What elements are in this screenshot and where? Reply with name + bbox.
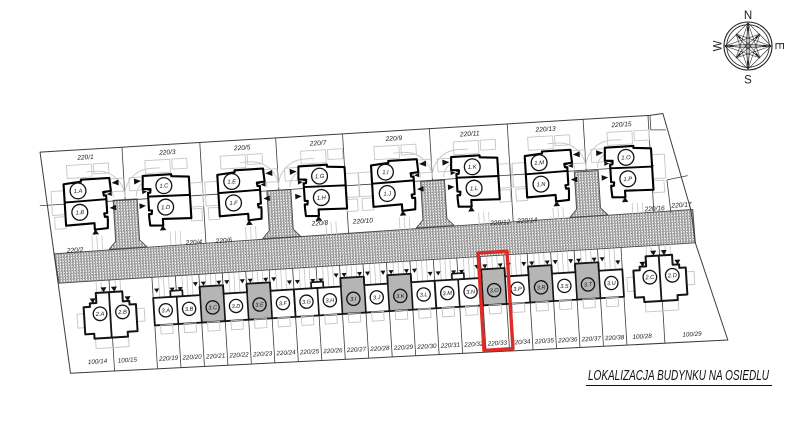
svg-text:220/14: 220/14: [516, 217, 538, 225]
svg-text:1.L: 1.L: [470, 186, 478, 192]
svg-text:220/10: 220/10: [352, 217, 374, 225]
svg-text:1.N: 1.N: [536, 182, 546, 189]
svg-text:1.F: 1.F: [229, 201, 238, 208]
svg-text:3.T: 3.T: [584, 282, 593, 289]
svg-text:220/2: 220/2: [66, 247, 84, 255]
svg-text:220/25: 220/25: [299, 348, 320, 356]
svg-text:2.C: 2.C: [644, 275, 655, 282]
svg-text:2.A: 2.A: [95, 312, 105, 319]
svg-text:1.E: 1.E: [227, 179, 236, 186]
svg-text:220/32: 220/32: [463, 341, 484, 349]
svg-text:220/24: 220/24: [275, 349, 296, 357]
svg-text:E: E: [773, 42, 785, 50]
svg-text:1.K: 1.K: [468, 164, 478, 171]
svg-text:220/36: 220/36: [557, 336, 578, 344]
svg-text:3.E: 3.E: [255, 302, 264, 309]
svg-text:1.J: 1.J: [383, 191, 391, 197]
svg-text:220/17: 220/17: [670, 201, 692, 209]
svg-text:220/5: 220/5: [233, 144, 251, 152]
svg-text:3.M: 3.M: [442, 291, 452, 298]
svg-text:3.L: 3.L: [420, 292, 428, 298]
svg-text:3.U: 3.U: [607, 281, 617, 288]
svg-text:1.M: 1.M: [534, 160, 544, 167]
svg-text:1.A: 1.A: [74, 189, 83, 196]
svg-text:1.C: 1.C: [159, 183, 169, 190]
svg-text:220/12: 220/12: [489, 219, 511, 227]
svg-text:3.I: 3.I: [350, 297, 357, 303]
svg-text:1.H: 1.H: [317, 195, 327, 202]
svg-text:1.G: 1.G: [315, 174, 325, 181]
svg-text:220/11: 220/11: [459, 130, 480, 138]
svg-text:3.A: 3.A: [161, 308, 170, 315]
svg-text:100/15: 100/15: [118, 356, 138, 364]
svg-text:3.S: 3.S: [560, 284, 569, 291]
svg-text:220/6: 220/6: [214, 237, 232, 245]
svg-text:S: S: [744, 75, 752, 87]
svg-text:3.C: 3.C: [208, 305, 218, 312]
svg-text:3.R: 3.R: [537, 285, 546, 292]
svg-text:220/30: 220/30: [416, 343, 437, 351]
svg-text:220/4: 220/4: [184, 239, 202, 247]
svg-text:3.N: 3.N: [466, 289, 476, 296]
svg-text:3.H: 3.H: [325, 298, 335, 305]
svg-text:1.D: 1.D: [161, 205, 170, 212]
svg-text:220/23: 220/23: [252, 350, 273, 358]
svg-text:220/33: 220/33: [487, 339, 508, 347]
svg-text:3.B: 3.B: [185, 307, 194, 314]
svg-text:2.B: 2.B: [117, 310, 127, 317]
svg-text:220/28: 220/28: [369, 345, 390, 353]
svg-text:3.G: 3.G: [302, 299, 312, 306]
svg-text:3.F: 3.F: [279, 301, 288, 308]
svg-text:220/9: 220/9: [384, 135, 402, 143]
svg-text:100/14: 100/14: [88, 358, 108, 366]
svg-text:220/13: 220/13: [534, 126, 556, 134]
svg-text:220/1: 220/1: [76, 154, 94, 162]
svg-text:220/22: 220/22: [228, 351, 249, 359]
svg-text:LOKALIZACJA BUDYNKU NA OSIEDLU: LOKALIZACJA BUDYNKU NA OSIEDLU: [588, 367, 770, 384]
svg-text:W: W: [713, 40, 725, 51]
svg-text:1.B: 1.B: [75, 210, 84, 217]
svg-text:3.O: 3.O: [490, 288, 500, 295]
svg-text:220/26: 220/26: [322, 347, 343, 355]
svg-text:220/37: 220/37: [580, 335, 601, 343]
svg-text:100/28: 100/28: [632, 333, 652, 341]
svg-text:1.O: 1.O: [621, 155, 631, 162]
svg-text:2.D: 2.D: [667, 273, 677, 280]
svg-text:1.P: 1.P: [623, 177, 632, 184]
svg-text:220/38: 220/38: [604, 334, 625, 342]
svg-text:220/35: 220/35: [534, 337, 555, 345]
svg-text:220/3: 220/3: [158, 149, 176, 157]
svg-text:220/16: 220/16: [643, 205, 665, 213]
svg-text:3.J: 3.J: [373, 295, 381, 301]
svg-text:220/19: 220/19: [158, 355, 179, 363]
svg-text:220/8: 220/8: [311, 220, 329, 228]
svg-text:220/15: 220/15: [610, 121, 632, 129]
svg-text:100/29: 100/29: [682, 331, 702, 339]
svg-text:3.K: 3.K: [396, 294, 405, 301]
svg-text:220/31: 220/31: [440, 342, 461, 350]
svg-text:3.P: 3.P: [513, 286, 522, 293]
svg-text:1.I: 1.I: [382, 170, 389, 176]
svg-text:220/21: 220/21: [205, 353, 226, 361]
svg-text:220/27: 220/27: [346, 346, 367, 354]
svg-text:220/29: 220/29: [393, 344, 414, 352]
svg-text:220/20: 220/20: [181, 354, 202, 362]
svg-text:N: N: [744, 10, 752, 22]
svg-text:220/7: 220/7: [309, 140, 327, 148]
svg-text:3.D: 3.D: [232, 304, 241, 311]
